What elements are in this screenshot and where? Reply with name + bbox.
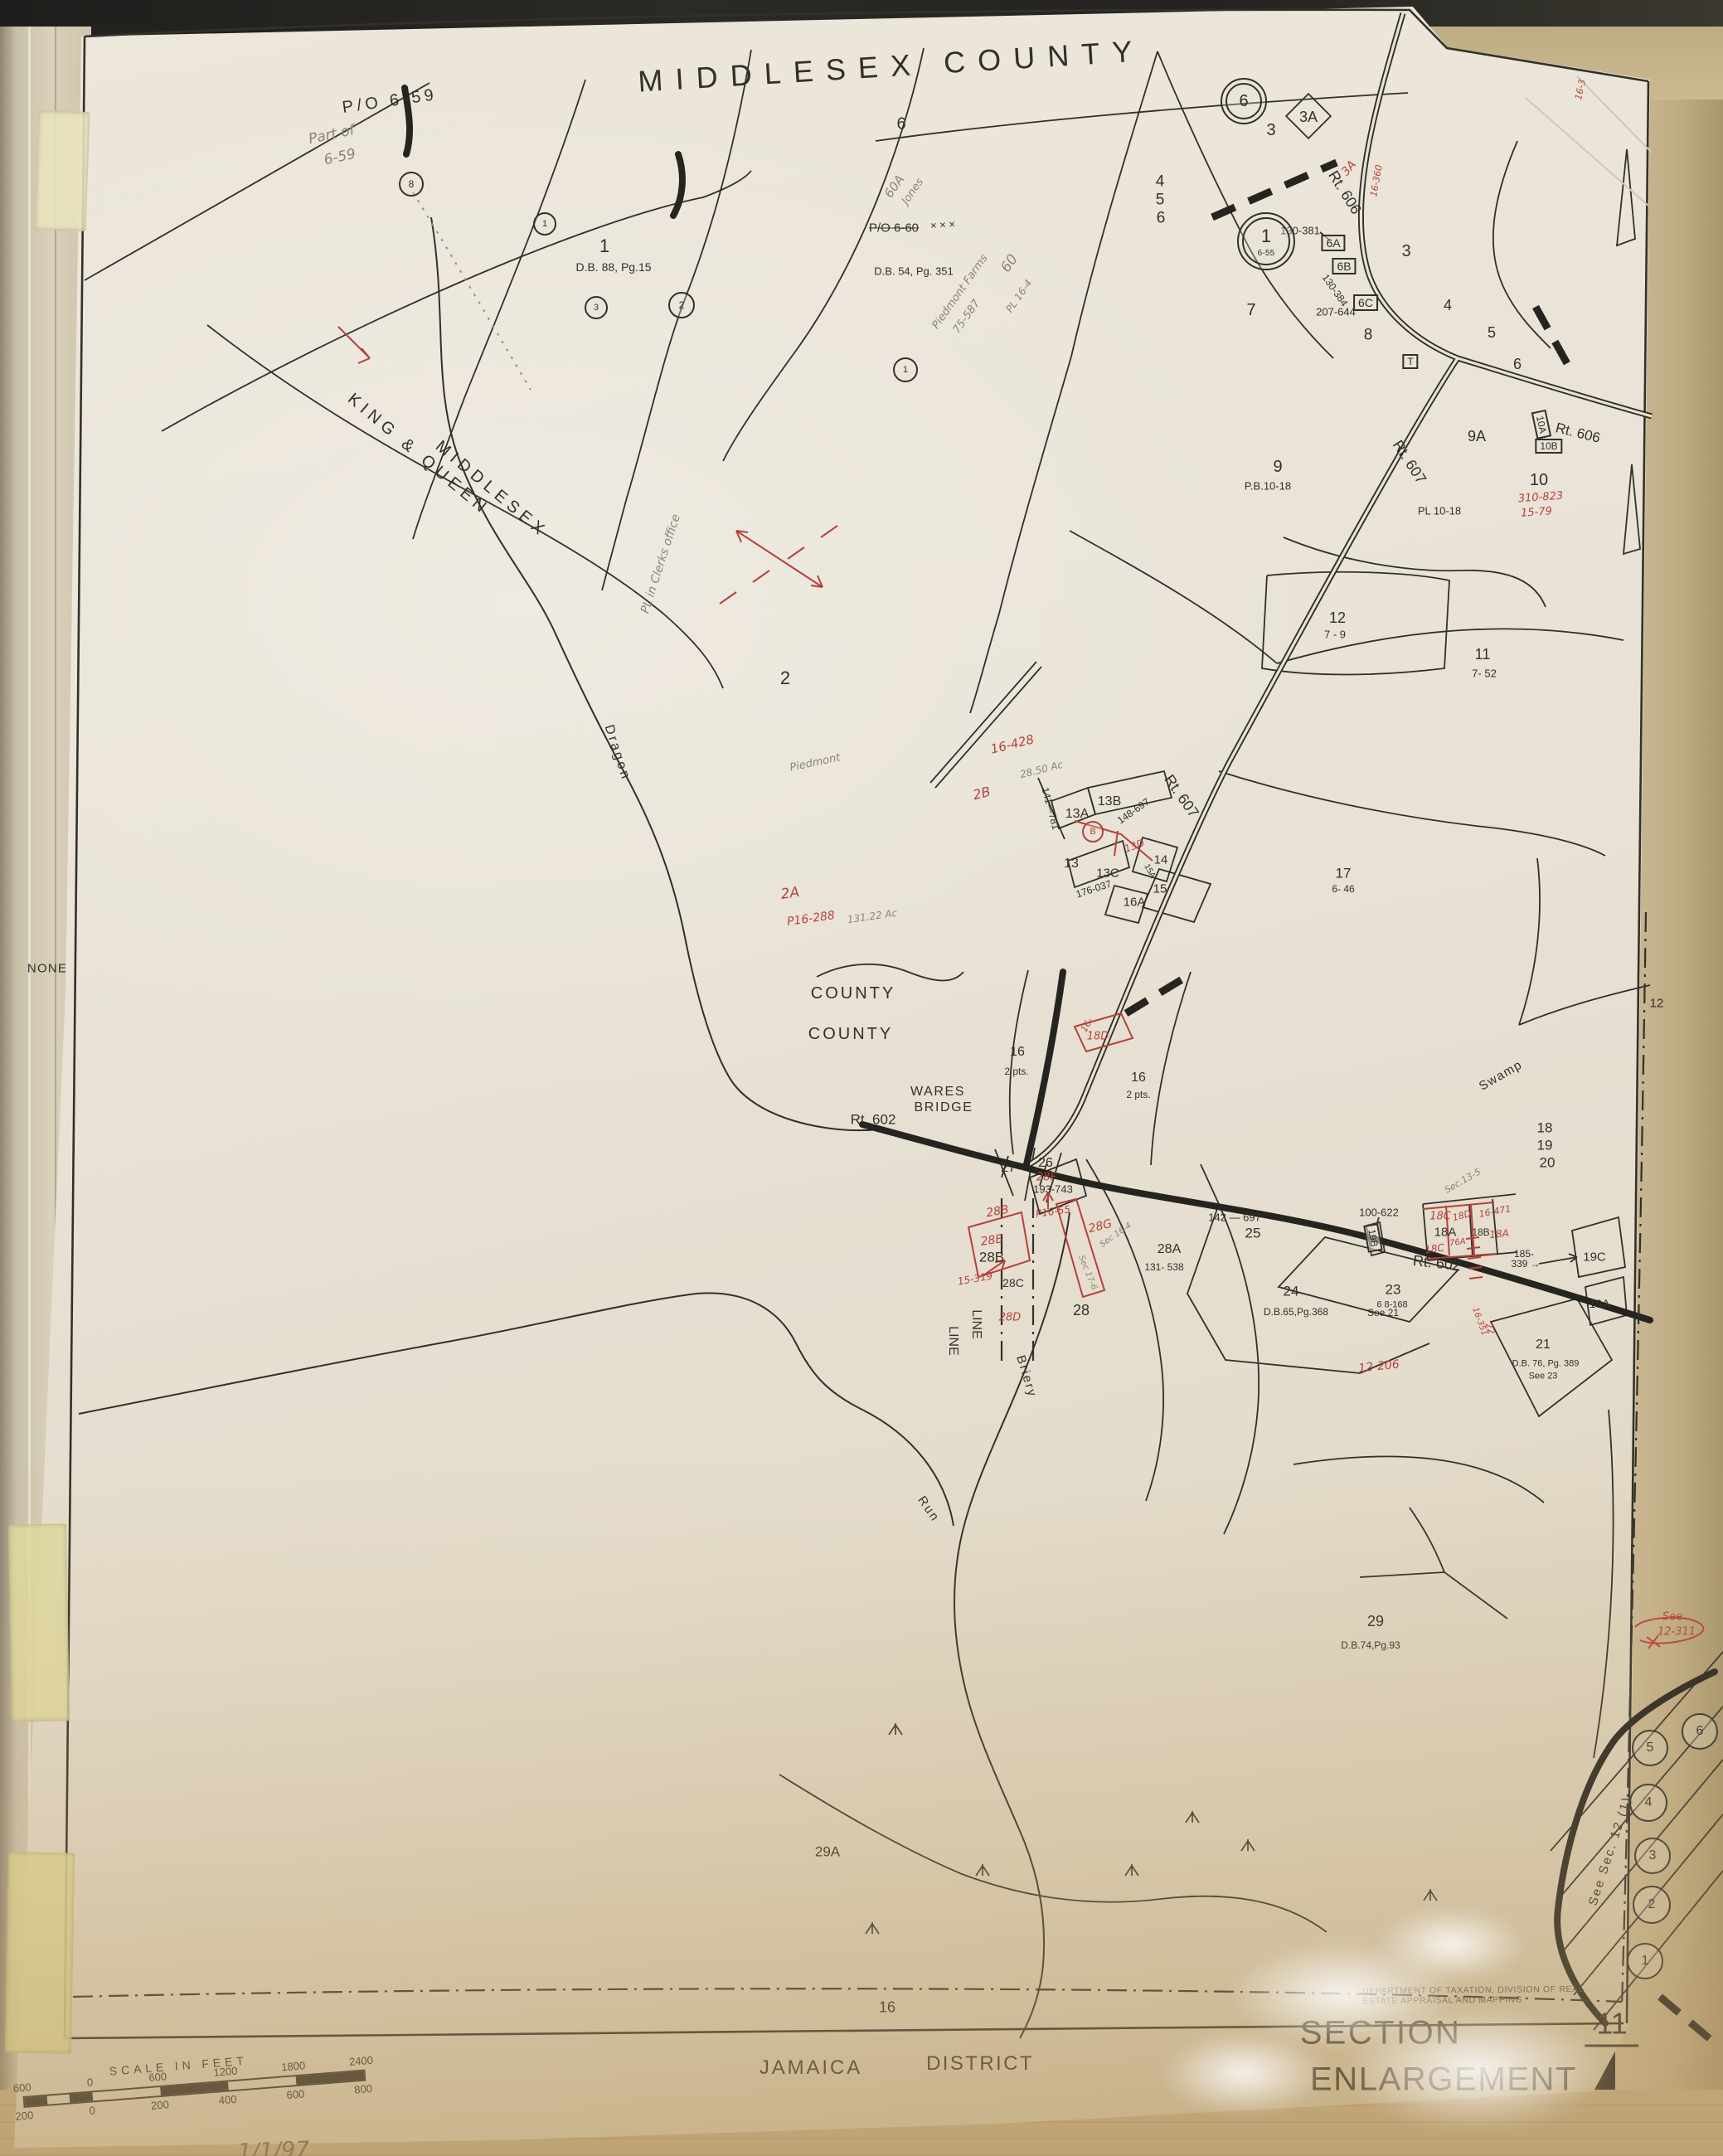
map-label: 207-644 [1316,307,1356,318]
map-label: 18 [1537,1121,1553,1135]
map-label: 16 [1010,1046,1025,1059]
map-label: 142 — 697 [1208,1212,1261,1223]
circled-number-value: 2 [679,299,685,311]
photo-lighting-wash [0,1451,1723,2156]
map-label: BRIDGE [915,1101,973,1114]
map-label: 310-823 [1517,491,1563,505]
map-label: 3 [1401,243,1410,260]
map-label: 28B [979,1250,1004,1265]
circled-number: 16-55 [1237,212,1295,270]
map-label: 14 [1154,854,1168,867]
map-label: T [1402,354,1418,369]
map-label: 2 [780,669,790,687]
map-label: 7 - 9 [1324,629,1346,640]
map-label: 18A [1434,1226,1457,1239]
map-label: 15 [1153,883,1167,896]
map-label: See 23 [1529,1372,1558,1381]
adjacent-sheet-north: 6 [896,115,905,134]
map-label: 18B [1472,1227,1489,1237]
map-label: 16 [1131,1071,1146,1085]
circled-number: 3 [585,296,608,319]
circled-number-subtext: 6-55 [1258,249,1275,258]
map-label: 13B [1098,795,1121,808]
map-label: 28C [1002,1277,1024,1289]
map-label: 6B [1332,258,1356,274]
map-label: 15-79 [1521,506,1553,519]
circled-number: 1 [893,357,918,382]
map-label: 18C [1429,1212,1451,1222]
map-label: 28 [1073,1303,1090,1318]
map-label: 5 [1488,325,1496,340]
map-label: 10 [1530,472,1548,488]
circled-number: 6 [1221,78,1267,124]
map-label: D.B.65,Pg.368 [1264,1307,1328,1317]
map-label: × × × [930,218,956,231]
map-label: D.B. 76, Pg. 389 [1512,1360,1580,1369]
map-label: 16A [1124,896,1146,909]
adjacent-sheet-east: 12 [1650,997,1664,1011]
adjacent-sheet-west: NONE [27,962,67,976]
map-label: 21 [1536,1338,1551,1352]
map-label: LINE [969,1309,983,1339]
map-label: 12 [1329,610,1346,625]
tape-top-left [35,110,90,231]
map-label: 28F [1036,1173,1056,1183]
circled-number-value: 1 [1261,226,1271,247]
map-label: 3A [1299,109,1318,124]
map-label: PL 10-18 [1418,506,1461,517]
map-label: 10B [1535,439,1562,454]
map-label: 6 [1157,211,1166,226]
map-label: See 21 [1367,1308,1399,1318]
map-label: P/O 6-60 [869,222,919,235]
map-label: 1 [599,237,609,255]
circled-number: 8 [399,172,424,197]
map-label: 28A [1158,1243,1181,1256]
circled-number-value: 3 [594,303,599,313]
map-label: 8 [1364,328,1373,343]
map-label: 18C [1424,1242,1444,1255]
circled-number-value: 1 [542,219,547,229]
map-label: 27 [1001,1162,1016,1175]
map-label: COUNTY [808,1026,893,1042]
map-label: 18D [1087,1032,1109,1042]
map-label: 13A [1065,808,1089,821]
circled-number: B [1082,821,1104,842]
map-label: 6A [1321,235,1345,251]
map-label: P.B.10-18 [1245,481,1291,492]
circled-number-value: 6 [1239,92,1248,111]
map-label: 6 [1513,357,1522,371]
map-label: 6C [1353,294,1378,311]
map-label: 2A [780,886,801,902]
circled-number: 2 [668,292,695,318]
map-label: 17 [1336,867,1352,881]
map-label: 4 [1444,298,1452,313]
map-label: 11 [1475,647,1491,662]
map-label: 18A [1489,1228,1509,1240]
circled-number-value: 8 [409,178,415,190]
map-label: 26 [1038,1157,1053,1170]
map-label: 19 [1537,1139,1553,1153]
map-label: 13 [1064,857,1079,871]
map-label: COUNTY [811,985,895,1002]
map-label: D.B. 54, Pg. 351 [874,266,953,277]
map-label: LINE [946,1326,959,1356]
map-label: 24 [1284,1284,1299,1299]
map-label: 23 [1386,1283,1401,1297]
map-label: 2 pts. [1004,1066,1028,1076]
circled-number-value: B [1090,827,1095,837]
circled-number-value: 1 [903,365,908,375]
map-label: 20 [1540,1156,1556,1170]
map-label: 28E [980,1233,1003,1248]
map-label: 7 [1246,302,1255,318]
map-label: 100-622 [1359,1207,1399,1218]
map-label: 2 pts. [1126,1090,1150,1100]
map-label: 131- 538 [1144,1262,1183,1272]
map-label: WARES [910,1085,965,1099]
map-label: 6- 46 [1332,884,1354,894]
map-label: 339 → [1511,1259,1540,1269]
map-label: 7- 52 [1472,668,1497,679]
circled-number: 1 [533,212,556,236]
map-label: 193-743 [1033,1184,1073,1195]
map-label: Rt. 602 [851,1113,896,1127]
map-label: 3 [1266,122,1275,138]
map-label: 5 [1156,192,1165,208]
map-label: 28D [999,1313,1022,1323]
map-label: 25 [1245,1226,1261,1241]
map-label: 4 [1156,174,1165,190]
map-book-photo: MIDDLESEX COUNTY 6 16 NONE 12 JAMAICA DI… [0,0,1723,2156]
map-label: 9A [1468,429,1486,444]
map-label: 9 [1273,459,1282,475]
map-label: D.B. 88, Pg.15 [575,261,651,273]
map-label: 19C [1583,1251,1606,1264]
map-label: 19A [1590,1298,1610,1309]
